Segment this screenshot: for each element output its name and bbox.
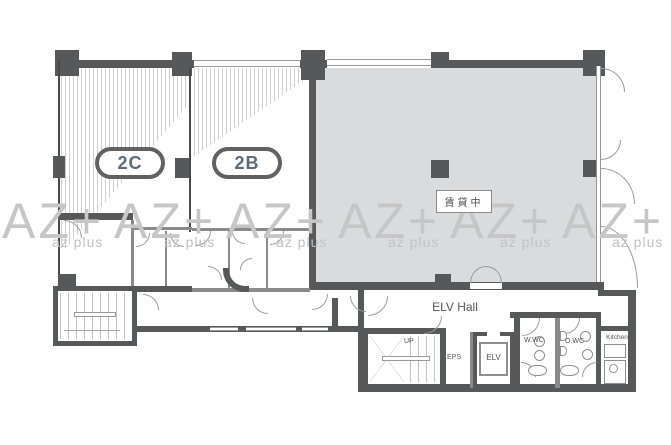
wall <box>514 312 520 392</box>
door-arc <box>196 231 211 246</box>
floor-plan: 2C 2B 賃貸中 UP ELV Hall <box>0 0 671 445</box>
kitchen-counter <box>604 344 626 358</box>
wall <box>309 282 604 290</box>
unit-label-2c: 2C <box>117 153 142 174</box>
eps-label: EPS <box>447 354 461 361</box>
wall <box>332 298 338 332</box>
door-arc <box>170 233 184 247</box>
column <box>431 52 449 68</box>
wall <box>131 220 134 292</box>
door-opening <box>470 283 502 289</box>
stair-up-label: UP <box>404 338 414 345</box>
wall <box>189 68 191 232</box>
column <box>58 274 76 286</box>
unit-badge-2b: 2B <box>212 147 282 179</box>
wall <box>432 60 605 68</box>
column <box>175 158 189 178</box>
basin <box>582 349 593 360</box>
window-arc <box>601 168 635 204</box>
wall <box>133 227 192 230</box>
door-arc <box>252 298 268 314</box>
stair-handrail <box>74 312 116 317</box>
kitchen-sink <box>609 364 618 373</box>
door-arc <box>136 233 150 247</box>
wall <box>192 288 310 292</box>
toilet <box>560 365 579 376</box>
door-arc <box>312 294 328 310</box>
window-arc <box>601 68 625 92</box>
stair-handrail <box>382 356 430 361</box>
elv-label: ELV <box>479 353 508 362</box>
wall <box>596 312 601 392</box>
door-arc <box>232 231 245 244</box>
unit-badge-2c: 2C <box>95 147 165 179</box>
basin <box>534 350 545 361</box>
unit-label-2b: 2B <box>234 153 259 174</box>
wall <box>266 231 268 290</box>
door-arc <box>564 318 580 334</box>
window <box>246 327 296 331</box>
window <box>327 59 432 66</box>
rented-status-box: 賃貸中 <box>436 190 492 213</box>
window <box>302 327 328 331</box>
window <box>194 60 302 67</box>
door-arc <box>240 258 252 270</box>
rented-status-label: 賃貸中 <box>445 194 484 209</box>
wall <box>500 332 514 336</box>
elv-hall-label: ELV Hall <box>420 300 490 314</box>
column <box>435 274 451 290</box>
door-arc <box>368 296 388 316</box>
wall <box>600 326 634 331</box>
wall <box>309 68 316 290</box>
wall <box>598 290 636 296</box>
urinal <box>560 346 567 356</box>
wall <box>58 213 133 220</box>
wall <box>165 231 167 292</box>
door-arc <box>350 296 366 312</box>
door-arc <box>270 231 284 245</box>
kitchen-label: Kitchen <box>601 334 633 341</box>
wall <box>473 332 487 336</box>
door-arc <box>208 266 222 280</box>
door-arc <box>582 362 597 377</box>
toilet <box>528 365 547 376</box>
door-arc <box>143 294 159 310</box>
column <box>431 160 449 178</box>
window-arc <box>601 140 621 160</box>
door-arc <box>522 318 540 336</box>
rented-area <box>316 68 598 286</box>
column <box>53 156 65 178</box>
wall <box>473 332 477 390</box>
wwc-label: W.WC <box>524 337 544 344</box>
entrance-arc <box>601 226 638 288</box>
owc-label: O.WC <box>565 338 584 345</box>
stair-direction-line <box>64 330 120 331</box>
window <box>210 327 238 331</box>
